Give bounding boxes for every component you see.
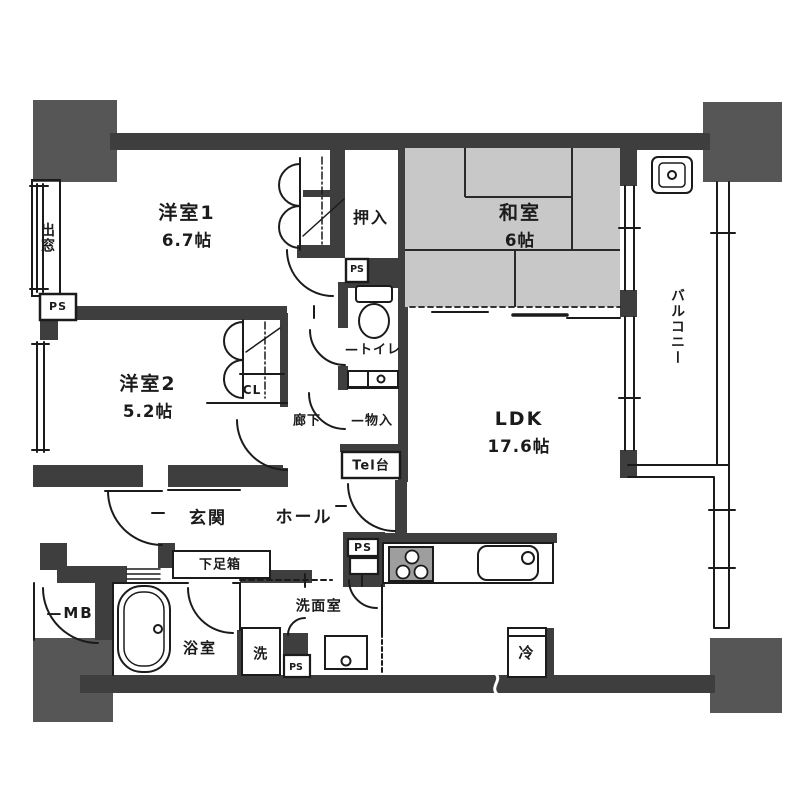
wall-fridge-pier <box>546 628 554 677</box>
label-hall: ホール <box>276 505 333 531</box>
ldk-size: 17.6帖 <box>488 434 551 459</box>
label-laundry: 洗 <box>253 645 269 666</box>
label-ps-washroom: PS <box>289 661 303 675</box>
label-meter-box: —MB <box>46 602 93 625</box>
label-bath: 浴室 <box>183 637 217 660</box>
label-ps-left: PS <box>49 299 67 316</box>
closet1-door-leaf-1 <box>279 164 300 206</box>
label-storage: —物入 <box>351 411 393 431</box>
column-bottom-right <box>710 638 782 713</box>
label-refrigerator: 冷 <box>518 642 535 665</box>
room1-name: 洋室1 <box>158 202 215 224</box>
entrance-door-arc <box>108 491 162 545</box>
entrance-step-lines <box>127 569 160 579</box>
bath-door-arc <box>188 588 233 633</box>
ldk-east-windows <box>619 186 640 450</box>
label-oshiire: 押入 <box>353 206 389 230</box>
ldk-door-arc <box>348 484 395 531</box>
room2-window <box>32 342 49 452</box>
column-top-left <box>33 100 117 182</box>
label-balcony: バルコニー <box>670 288 684 366</box>
closet1-door-leaf-2 <box>279 206 300 248</box>
wall-balcony-pier-north <box>620 140 637 186</box>
label-shoe-box: 下足箱 <box>199 555 241 575</box>
room2-door-arc <box>237 420 287 470</box>
cl-diagonal <box>246 328 280 352</box>
wall-cl-east <box>280 313 288 407</box>
room1-size: 6.7帖 <box>158 228 215 253</box>
toilet-tank <box>356 286 392 302</box>
wall-counter-back <box>383 533 557 543</box>
wall-ps-side <box>368 258 400 282</box>
label-tel-stand: Tel台 <box>352 456 389 476</box>
toilet-door-arc <box>310 330 345 365</box>
wall-room1-south <box>48 306 287 320</box>
closet1-shelf-stub <box>303 190 338 197</box>
toilet-counter <box>348 371 398 387</box>
label-room1: 洋室1 6.7帖 <box>158 199 215 253</box>
washbasin <box>325 636 367 669</box>
wall-genkan-north-east <box>168 465 283 487</box>
burner-1 <box>397 566 410 579</box>
washitsu-name: 和室 <box>499 202 541 224</box>
cl-door-leaf-2 <box>224 360 243 398</box>
label-washroom: 洗面室 <box>296 597 343 618</box>
column-top-right <box>703 102 782 182</box>
wall-toilet-west-lower <box>338 366 348 390</box>
wall-genkan-north-west <box>33 465 143 487</box>
label-toilet: —トイレ <box>345 340 401 360</box>
wall-mb-east <box>95 583 113 640</box>
wall-balcony-pier-mid <box>620 290 637 317</box>
wall-bottom <box>80 675 715 693</box>
laundry-door-arc <box>288 618 305 635</box>
room2-size: 5.2帖 <box>119 399 176 424</box>
wall-bay-stub <box>40 318 58 340</box>
label-entrance: 玄関 <box>189 506 227 532</box>
label-ps-toilet: PS <box>350 263 364 277</box>
wall-hall-pier <box>395 480 407 538</box>
label-washitsu: 和室 6帖 <box>499 199 541 253</box>
balcony-rail <box>628 182 735 628</box>
floor-plan: 出窓 PS 洋室1 6.7帖 押入 PS —トイレ 廊下 —物入 Tel台 CL… <box>0 0 800 800</box>
cl-door-leaf-1 <box>224 322 243 360</box>
burner-3 <box>406 551 419 564</box>
room2-name: 洋室2 <box>119 373 176 395</box>
ldk-name: LDK <box>495 408 544 430</box>
label-bay-window: 出窓 <box>40 223 54 254</box>
kitchen-cabinet-box <box>350 558 378 574</box>
wall-left-stub <box>40 543 67 570</box>
label-ps-kitchen: PS <box>354 540 372 557</box>
wall-toilet-west-upper <box>338 282 348 328</box>
wall-monoire-south <box>340 444 402 452</box>
toilet-bowl <box>359 304 389 338</box>
label-ldk: LDK 17.6帖 <box>488 405 551 459</box>
wall-mb-north <box>57 566 127 583</box>
burner-2 <box>415 566 428 579</box>
label-room2: 洋室2 5.2帖 <box>119 370 176 424</box>
label-corridor: 廊下 <box>293 411 321 431</box>
label-closet: CL <box>243 381 261 399</box>
washitsu-size: 6帖 <box>499 228 541 253</box>
